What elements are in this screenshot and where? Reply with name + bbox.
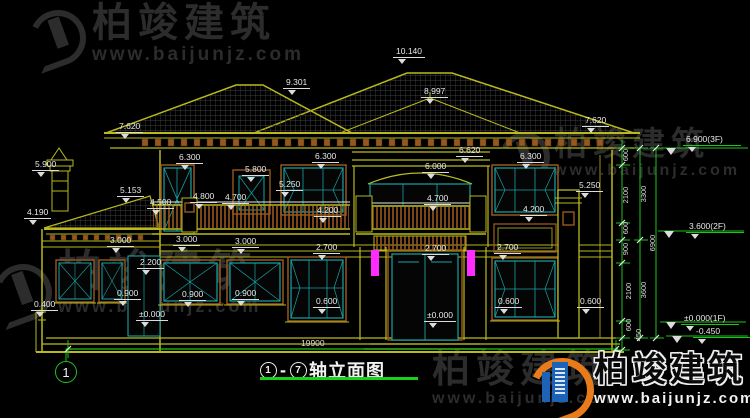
brand-logo-icon — [528, 352, 590, 414]
elevation-marker: ±0.000 — [136, 304, 168, 327]
elevation-marker: 6.900(3F) — [683, 129, 741, 152]
elevation-marker: 7.620 — [582, 110, 609, 133]
level-triangle-icon — [29, 220, 37, 225]
elevation-marker: 3.600(2F) — [686, 216, 744, 239]
elevation-marker-label: 3.000 — [173, 234, 200, 246]
elevation-marker-label: ±0.000 — [136, 309, 168, 321]
level-triangle-icon — [317, 164, 325, 169]
elevation-marker-label: 0.900 — [179, 289, 206, 301]
elevation-marker: 4.200 — [314, 200, 341, 223]
brand-url: www.baijunjz.com — [594, 390, 750, 407]
elevation-marker-label: 2.200 — [137, 257, 164, 269]
elevation-marker: 3.000 — [107, 230, 134, 253]
elevation-marker-label: 4.800 — [190, 191, 217, 203]
dimension-chain-label: 3300 — [639, 177, 649, 211]
elevation-marker: 2.700 — [494, 237, 521, 260]
level-triangle-icon — [237, 249, 245, 254]
elevation-marker: 6.620 — [456, 140, 483, 163]
level-triangle-icon — [36, 312, 44, 317]
elevation-marker-label: 2.700 — [313, 242, 340, 254]
level-triangle-icon — [318, 309, 326, 314]
level-triangle-icon — [184, 302, 192, 307]
level-triangle-icon — [427, 256, 435, 261]
elevation-marker: 2.700 — [313, 237, 340, 260]
elevation-marker-label: 3.000 — [107, 235, 134, 247]
elevation-marker-label: 0.400 — [31, 299, 58, 311]
level-triangle-icon — [237, 301, 245, 306]
dimension-chain-label: 2100 — [624, 274, 634, 308]
elevation-marker-label: 5.250 — [576, 180, 603, 192]
dimension-chain-label: 600 — [624, 308, 634, 342]
level-triangle-icon — [688, 147, 696, 152]
level-triangle-icon — [318, 255, 326, 260]
elevation-marker: 3.000 — [173, 229, 200, 252]
level-triangle-icon — [698, 339, 706, 344]
elevation-marker: 0.900 — [232, 283, 259, 306]
elevation-marker: 5.800 — [242, 159, 269, 182]
level-triangle-icon — [522, 164, 530, 169]
elevation-marker-label: 6.300 — [176, 152, 203, 164]
level-triangle-icon — [112, 248, 120, 253]
level-triangle-icon — [429, 323, 437, 328]
elevation-marker: 0.600 — [577, 291, 604, 314]
title-axis-from-bubble: 1 — [260, 362, 277, 379]
elevation-marker-label: 3.600(2F) — [686, 221, 744, 233]
elevation-marker-label: 5.153 — [117, 185, 144, 197]
level-triangle-icon — [499, 255, 507, 260]
level-triangle-icon — [181, 165, 189, 170]
level-triangle-icon — [37, 172, 45, 177]
title-underline — [260, 377, 418, 380]
elevation-marker: 6.300 — [176, 147, 203, 170]
elevation-marker: 2.200 — [137, 252, 164, 275]
elevation-marker: 2.700 — [422, 238, 449, 261]
dimension-chain-label: 3600 — [639, 273, 649, 307]
elevation-marker: 6.300 — [517, 146, 544, 169]
level-triangle-icon — [195, 204, 203, 209]
elevation-marker-label: 0.900 — [114, 288, 141, 300]
elevation-marker: 4.700 — [222, 187, 249, 210]
elevation-marker-label: 5.800 — [242, 164, 269, 176]
elevation-marker-label: 6.620 — [456, 145, 483, 157]
level-triangle-icon — [587, 128, 595, 133]
elevation-marker: 0.400 — [31, 294, 58, 317]
level-triangle-icon — [426, 99, 434, 104]
elevation-marker-label: 6.300 — [312, 151, 339, 163]
dimension-chain-label: 450 — [634, 318, 644, 352]
level-triangle-icon — [581, 193, 589, 198]
elevation-marker-label: 4.700 — [222, 192, 249, 204]
title-axis-to-bubble: 7 — [290, 362, 307, 379]
level-triangle-icon — [119, 301, 127, 306]
elevation-marker: 9.301 — [283, 72, 310, 95]
cad-elevation-drawing: 柏竣建筑 www.baijunjz.com 柏竣建筑 www.baijunjz.… — [0, 0, 750, 418]
level-triangle-icon — [122, 198, 130, 203]
elevation-marker: 0.900 — [179, 284, 206, 307]
elevation-marker: 6.300 — [312, 146, 339, 169]
elevation-marker: 6.000 — [422, 156, 449, 179]
level-triangle-icon — [319, 218, 327, 223]
level-triangle-icon — [121, 134, 129, 139]
level-triangle-icon — [288, 90, 296, 95]
level-triangle-icon — [141, 322, 149, 327]
brand-logo: 柏竣建筑 www.baijunjz.com — [528, 352, 750, 414]
elevation-marker-label: 7.620 — [582, 115, 609, 127]
level-triangle-icon — [461, 158, 469, 163]
elevation-marker-label: 6.300 — [517, 151, 544, 163]
elevation-marker: 4.190 — [24, 202, 51, 225]
elevation-marker-label: -0.450 — [693, 326, 750, 338]
elevation-marker-label: 0.600 — [495, 296, 522, 308]
elevation-marker: -0.450 — [693, 321, 750, 344]
elevation-marker: 7.620 — [116, 116, 143, 139]
elevation-marker: 4.800 — [190, 186, 217, 209]
level-triangle-icon — [429, 206, 437, 211]
elevation-marker-label: 4.200 — [314, 205, 341, 217]
elevation-marker: 0.900 — [114, 283, 141, 306]
elevation-marker: 0.600 — [495, 291, 522, 314]
elevation-marker: 5.153 — [117, 180, 144, 203]
elevation-marker: ±0.000 — [424, 305, 456, 328]
elevation-marker-label: 4.700 — [424, 193, 451, 205]
dimension-chain-label: 900 — [621, 232, 631, 266]
total-width-dimension: 19900 — [301, 338, 325, 348]
elevation-marker: 4.200 — [520, 199, 547, 222]
level-triangle-icon — [142, 270, 150, 275]
elevation-marker: 10.140 — [393, 41, 425, 64]
elevation-marker-label: 2.700 — [422, 243, 449, 255]
elevation-marker: 0.600 — [313, 291, 340, 314]
elevation-marker-label: 4.500 — [147, 197, 174, 209]
elevation-marker: 5.250 — [276, 174, 303, 197]
level-triangle-icon — [525, 217, 533, 222]
dimension-chain-label: 2100 — [621, 178, 631, 212]
level-triangle-icon — [227, 205, 235, 210]
level-triangle-icon — [582, 309, 590, 314]
level-triangle-icon — [691, 234, 699, 239]
axis-bubble-label: 1 — [62, 365, 69, 380]
elevation-marker: 4.700 — [424, 188, 451, 211]
elevation-marker: 5.250 — [576, 175, 603, 198]
elevation-marker-label: 9.301 — [283, 77, 310, 89]
elevation-marker-label: 5.900 — [32, 159, 59, 171]
axis-bubble-1: 1 — [55, 361, 77, 383]
elevation-marker-label: 0.600 — [577, 296, 604, 308]
elevation-marker-label: 6.900(3F) — [683, 134, 741, 146]
elevation-marker: 4.500 — [147, 192, 174, 215]
elevation-marker-label: 7.620 — [116, 121, 143, 133]
elevation-marker-label: 5.250 — [276, 179, 303, 191]
level-triangle-icon — [427, 174, 435, 179]
elevation-marker-label: 3.000 — [232, 236, 259, 248]
level-triangle-icon — [398, 59, 406, 64]
elevation-marker-label: 4.200 — [520, 204, 547, 216]
level-triangle-icon — [152, 210, 160, 215]
elevation-marker-label: 2.700 — [494, 242, 521, 254]
elevation-marker-label: 8.997 — [421, 86, 448, 98]
level-triangle-icon — [281, 192, 289, 197]
elevation-marker: 8.997 — [421, 81, 448, 104]
elevation-marker: 5.900 — [32, 154, 59, 177]
elevation-marker-label: 6.000 — [422, 161, 449, 173]
elevation-marker-label: 10.140 — [393, 46, 425, 58]
dimension-chain-label: 600 — [621, 138, 631, 172]
elevation-marker-label: 0.900 — [232, 288, 259, 300]
level-triangle-icon — [247, 177, 255, 182]
elevation-marker-label: ±0.000 — [424, 310, 456, 322]
dimension-chain-label: 6900 — [648, 226, 658, 260]
elevation-marker: 3.000 — [232, 231, 259, 254]
elevation-marker-label: 0.600 — [313, 296, 340, 308]
elevation-marker-label: 4.190 — [24, 207, 51, 219]
level-triangle-icon — [178, 247, 186, 252]
level-triangle-icon — [500, 309, 508, 314]
brand-name: 柏竣建筑 — [594, 352, 750, 388]
